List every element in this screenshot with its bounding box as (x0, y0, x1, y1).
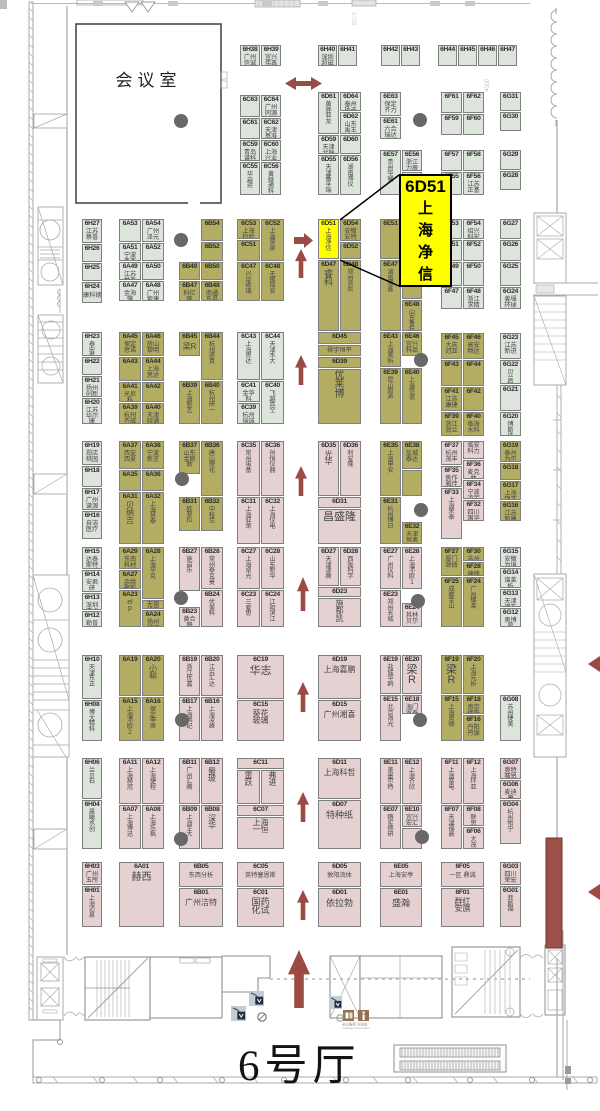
svg-text:Catalogs Information: Catalogs Information (342, 1026, 370, 1030)
svg-text:4000: 4000 (485, 78, 491, 92)
